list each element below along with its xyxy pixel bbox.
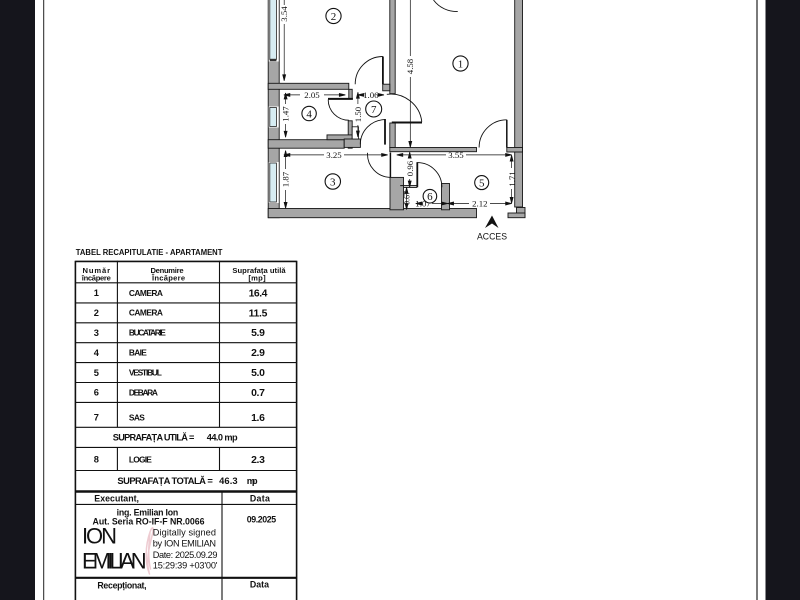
svg-text:2.05: 2.05 — [304, 90, 320, 100]
svg-text:Executant,: Executant, — [94, 494, 139, 504]
svg-text:16.4: 16.4 — [249, 288, 268, 299]
svg-text:SUPRAFAȚA UTILĂ =: SUPRAFAȚA UTILĂ = — [113, 433, 195, 443]
svg-text:6: 6 — [427, 191, 433, 203]
svg-text:2.9: 2.9 — [251, 348, 265, 359]
svg-text:Digitally signed: Digitally signed — [153, 528, 216, 538]
svg-text:ACCES: ACCES — [477, 232, 507, 243]
svg-text:4.58: 4.58 — [405, 58, 415, 74]
svg-text:44.0 mp: 44.0 mp — [207, 433, 238, 443]
svg-text:Data: Data — [250, 579, 269, 589]
svg-text:5: 5 — [479, 177, 485, 189]
svg-text:5: 5 — [94, 368, 99, 378]
svg-text:6: 6 — [94, 388, 99, 398]
svg-text:DEBARA: DEBARA — [129, 387, 158, 397]
svg-text:CAMERA: CAMERA — [129, 288, 163, 298]
svg-text:SUPRAFAȚA TOTALĂ =: SUPRAFAȚA TOTALĂ = — [117, 475, 213, 486]
svg-text:7: 7 — [371, 104, 377, 116]
svg-text:7: 7 — [94, 413, 99, 423]
svg-text:1.47: 1.47 — [281, 106, 291, 122]
svg-text:[mp]: [mp] — [248, 274, 266, 283]
svg-text:Recepționat,: Recepționat, — [97, 580, 146, 590]
svg-text:1.87: 1.87 — [281, 171, 291, 187]
svg-text:1.50: 1.50 — [353, 106, 363, 122]
svg-text:15:29:39 +03'00': 15:29:39 +03'00' — [153, 561, 218, 571]
svg-text:2.12: 2.12 — [472, 198, 487, 208]
svg-text:ION: ION — [82, 524, 117, 549]
svg-text:5.0: 5.0 — [251, 368, 265, 379]
svg-text:2.3: 2.3 — [251, 455, 265, 466]
svg-text:SAS: SAS — [129, 412, 145, 422]
svg-text:Date: 2025.09.29: Date: 2025.09.29 — [153, 550, 218, 560]
svg-text:11.5: 11.5 — [249, 308, 268, 319]
svg-text:4: 4 — [306, 108, 312, 120]
svg-text:LOGIE: LOGIE — [129, 454, 152, 464]
svg-text:1.6: 1.6 — [251, 413, 265, 424]
svg-text:09.2025: 09.2025 — [247, 514, 276, 524]
svg-text:0.96: 0.96 — [405, 160, 415, 176]
svg-text:3: 3 — [330, 176, 336, 188]
svg-text:1.06: 1.06 — [363, 90, 379, 100]
svg-text:Încăpere: Încăpere — [151, 274, 185, 283]
svg-text:1: 1 — [458, 58, 464, 70]
svg-text:3.55: 3.55 — [448, 150, 464, 160]
svg-text:CAMERA: CAMERA — [129, 308, 163, 318]
svg-text:5.9: 5.9 — [251, 328, 265, 339]
svg-text:by ION EMILIAN: by ION EMILIAN — [153, 539, 216, 549]
svg-text:4: 4 — [94, 348, 100, 358]
svg-text:încăpere: încăpere — [81, 274, 111, 283]
svg-text:TABEL RECAPITULATIE - APARTAME: TABEL RECAPITULATIE - APARTAMENT — [76, 247, 223, 257]
svg-text:3.54: 3.54 — [279, 6, 289, 22]
svg-text:3.25: 3.25 — [326, 150, 342, 160]
svg-text:46.3: 46.3 — [219, 475, 238, 486]
svg-text:2: 2 — [331, 11, 337, 23]
svg-text:0.7: 0.7 — [251, 388, 265, 399]
svg-text:0.67: 0.67 — [403, 191, 412, 205]
svg-text:BUCATARIE: BUCATARIE — [129, 328, 166, 338]
svg-text:Data: Data — [250, 494, 270, 504]
svg-text:3: 3 — [94, 328, 99, 338]
svg-text:1.71: 1.71 — [507, 171, 517, 186]
svg-text:BAIE: BAIE — [129, 348, 147, 358]
svg-text:EMILIAN: EMILIAN — [82, 549, 147, 574]
svg-text:2: 2 — [94, 308, 99, 318]
svg-text:8: 8 — [94, 455, 99, 465]
svg-text:mp: mp — [247, 475, 258, 486]
svg-text:1: 1 — [94, 288, 99, 298]
svg-text:VESTIBUL: VESTIBUL — [129, 367, 162, 377]
